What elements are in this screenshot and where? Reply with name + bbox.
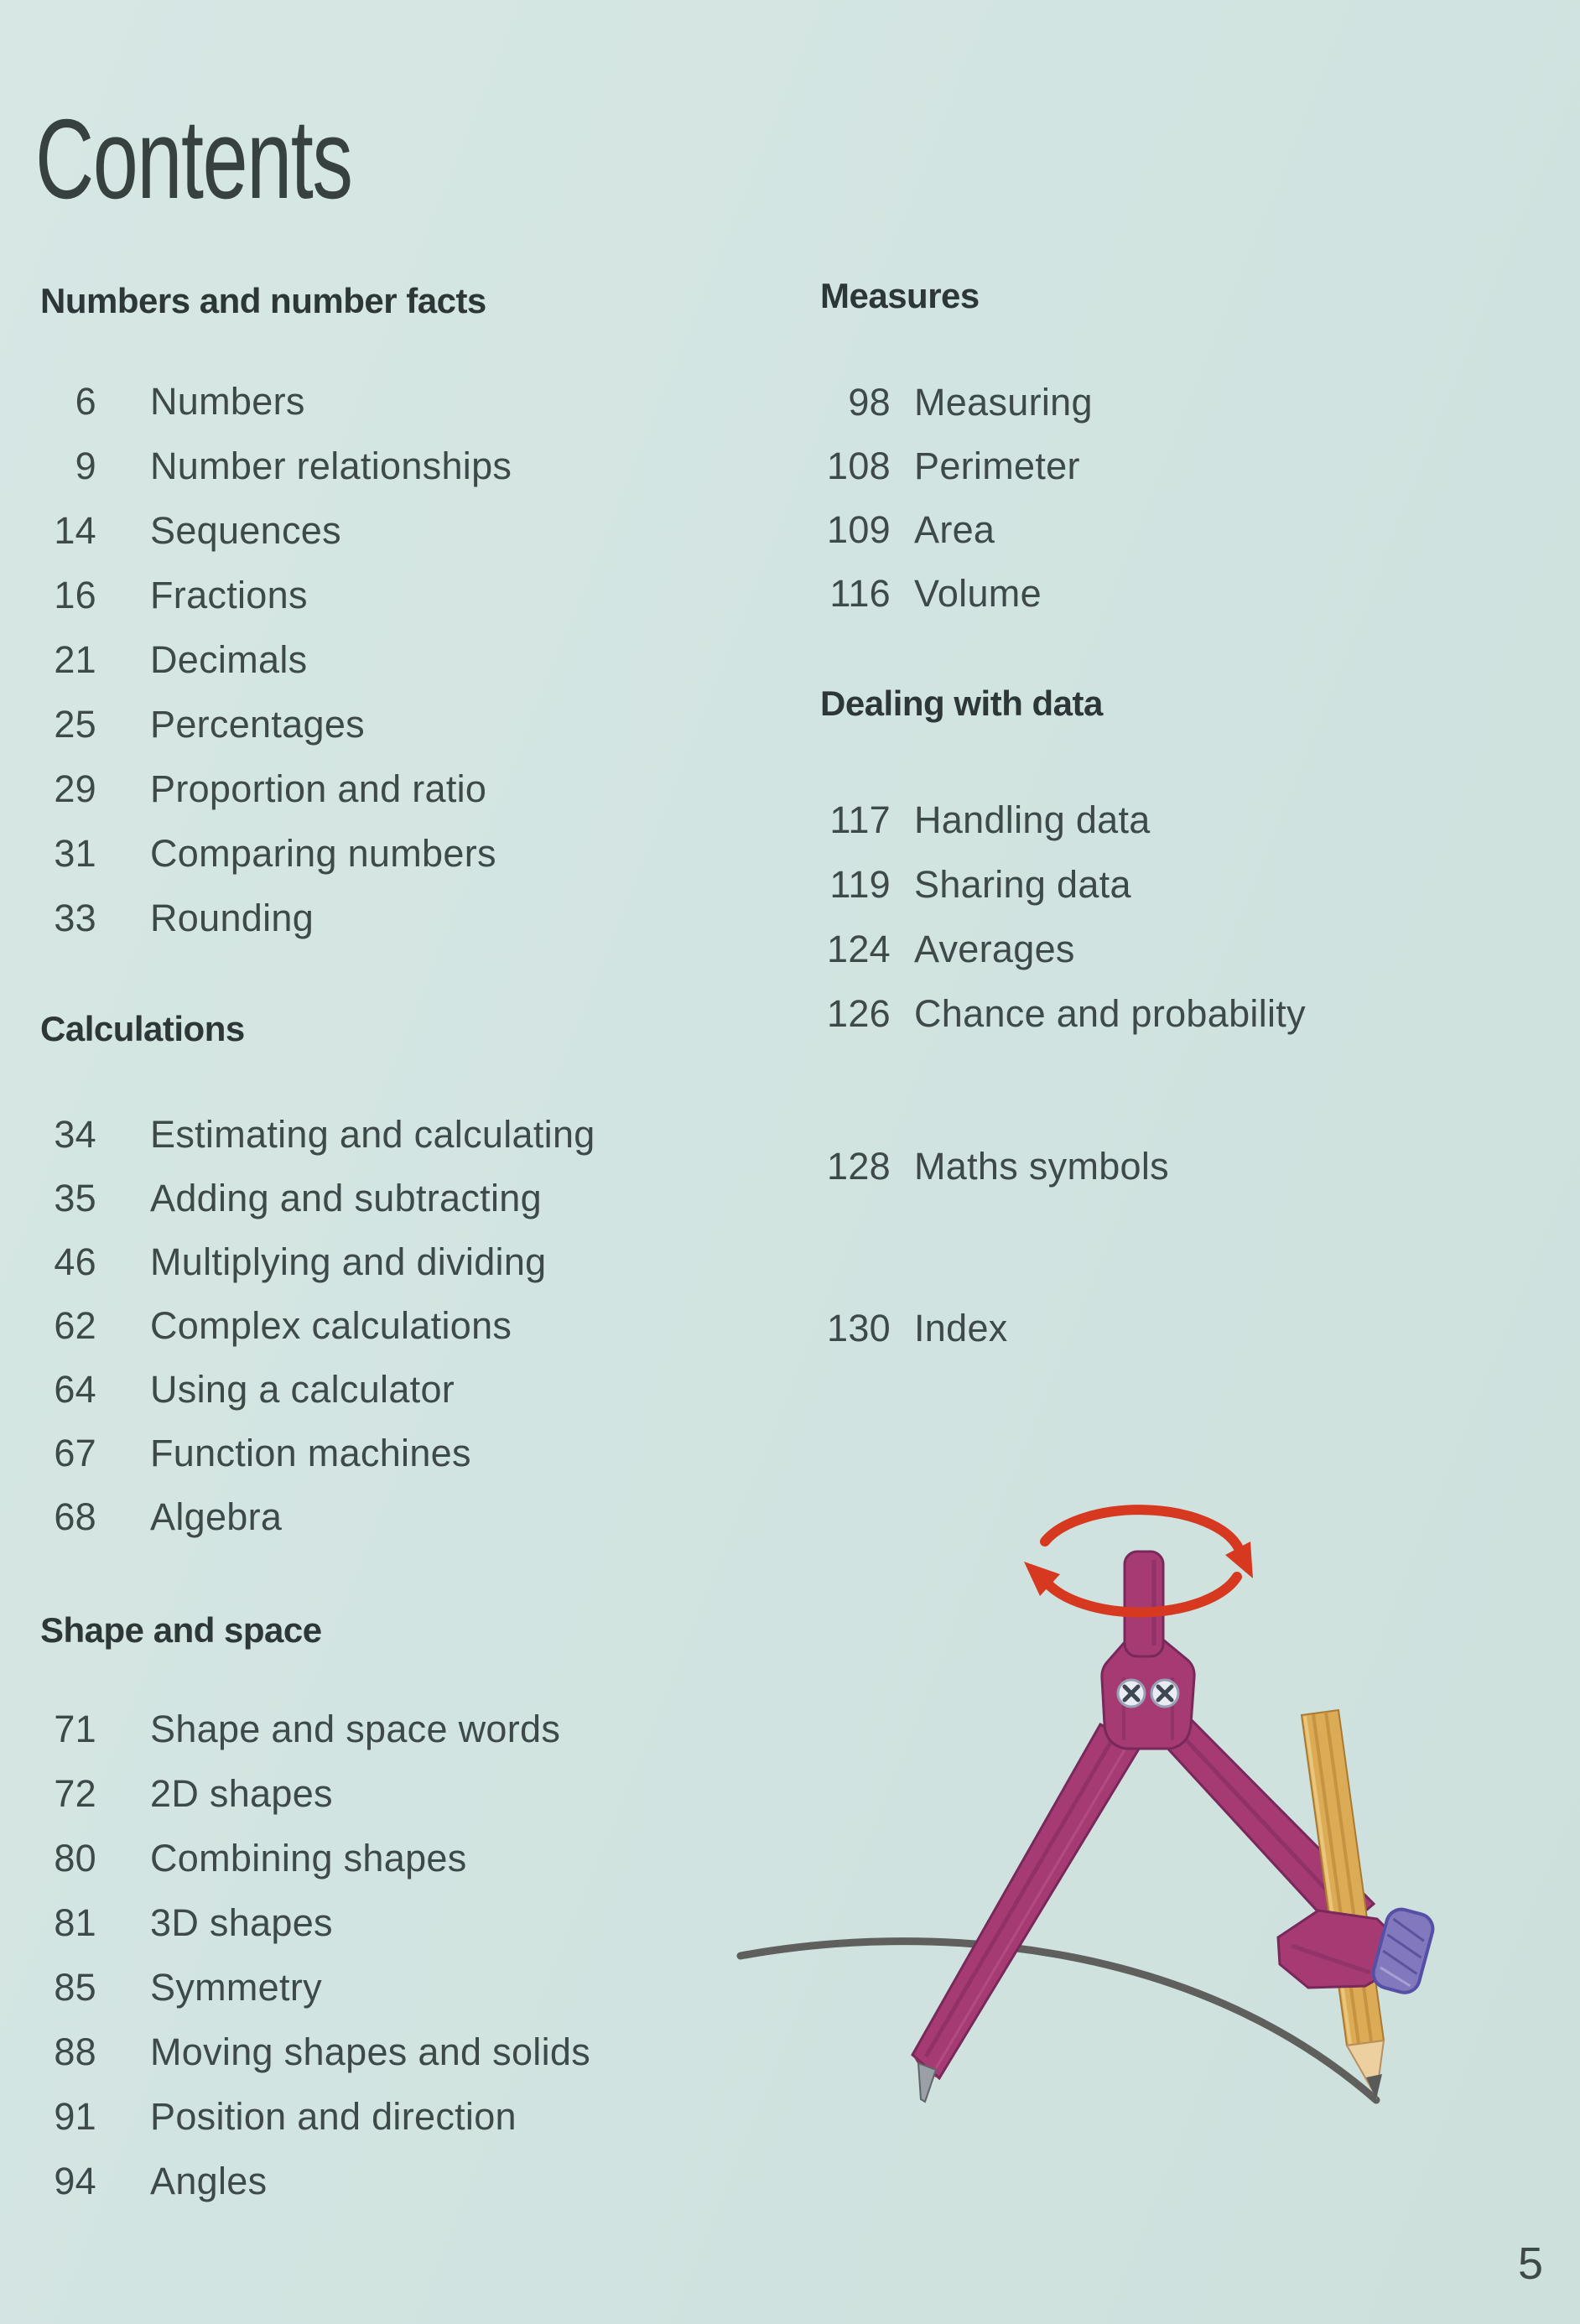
toc-entry-page-number: 124 — [797, 928, 891, 971]
toc-entry-page-number: 117 — [797, 798, 891, 842]
pencil — [1302, 1710, 1384, 2099]
toc-entry-page-number: 67 — [34, 1432, 96, 1475]
section-heading-dealing-with-data: Dealing with data — [820, 684, 1103, 724]
toc-entry: 126 Chance and probability — [797, 981, 1560, 1046]
toc-entry-page-number: 16 — [34, 574, 96, 617]
toc-entry-page-number: 62 — [34, 1304, 96, 1348]
toc-entry: 62 Complex calculations — [34, 1294, 772, 1358]
toc-entry: 130 Index — [797, 1296, 1560, 1360]
toc-entry: 124 Averages — [797, 917, 1560, 981]
toc-entry-page-number: 68 — [34, 1495, 96, 1539]
toc-section-rows: 6 Numbers 9 Number relationships 14 Sequ… — [34, 369, 772, 950]
toc-entry: 128 Maths symbols — [797, 1134, 1560, 1198]
page-title: Contents — [35, 94, 352, 224]
toc-entry-label: 2D shapes — [150, 1772, 333, 1816]
toc-entry: 29 Proportion and ratio — [34, 756, 772, 821]
toc-entry-page-number: 9 — [34, 445, 96, 488]
toc-entry: 109 Area — [797, 498, 1560, 562]
compass-knob — [1125, 1552, 1163, 1656]
toc-entry-label: Symmetry — [150, 1966, 322, 2009]
toc-entry: 67 Function machines — [34, 1422, 772, 1485]
toc-entry-label: Proportion and ratio — [150, 767, 486, 811]
toc-entry-label: Percentages — [150, 703, 365, 746]
toc-entry-page-number: 119 — [797, 863, 891, 907]
toc-entry-label: Multiplying and dividing — [150, 1240, 546, 1284]
toc-entry: 81 3D shapes — [34, 1890, 772, 1955]
toc-entry-label: Chance and probability — [914, 992, 1306, 1036]
toc-entry-page-number: 91 — [34, 2095, 96, 2139]
toc-entry: 119 Sharing data — [797, 852, 1560, 917]
toc-entry-label: Index — [914, 1307, 1008, 1350]
toc-entry-page-number: 31 — [34, 832, 96, 876]
toc-entry-page-number: 14 — [34, 509, 96, 553]
toc-entry: 116 Volume — [797, 562, 1560, 626]
toc-entry-page-number: 81 — [34, 1901, 96, 1945]
toc-section-rows: 98 Measuring 108 Perimeter 109 Area 116 … — [797, 371, 1560, 626]
toc-entry-label: Comparing numbers — [150, 832, 496, 876]
drawn-arc — [741, 1942, 1376, 2100]
toc-entry: 94 Angles — [34, 2149, 772, 2213]
toc-entry-label: Maths symbols — [914, 1145, 1169, 1188]
compass-pencil-leg — [1164, 1721, 1374, 1934]
toc-entry-page-number: 71 — [34, 1708, 96, 1751]
holder-thumbscrew — [1370, 1906, 1436, 1996]
toc-entry-label: Number relationships — [150, 445, 512, 488]
toc-entry: 21 Decimals — [34, 627, 772, 692]
toc-entry-label: Complex calculations — [150, 1304, 512, 1348]
compass-needle-point — [918, 2063, 936, 2102]
toc-standalone-rows: 128 Maths symbols 130 Index — [797, 1134, 1560, 1360]
toc-section-rows: 71 Shape and space words 72 2D shapes 80… — [34, 1697, 772, 2213]
toc-entry-label: Combining shapes — [150, 1837, 467, 1880]
toc-entry: 16 Fractions — [34, 563, 772, 627]
toc-entry-label: Sequences — [150, 509, 341, 553]
toc-entry-label: Area — [914, 508, 995, 552]
toc-entry-page-number: 21 — [34, 638, 96, 682]
toc-entry: 68 Algebra — [34, 1485, 772, 1549]
toc-entry-page-number: 25 — [34, 703, 96, 746]
toc-entry-label: 3D shapes — [150, 1901, 333, 1945]
book-contents-page: Contents Numbers and number facts 6 Numb… — [0, 0, 1580, 2324]
toc-entry-label: Shape and space words — [150, 1708, 560, 1751]
toc-entry-label: Fractions — [150, 574, 308, 617]
toc-entry-page-number: 128 — [797, 1145, 891, 1188]
toc-entry-page-number: 80 — [34, 1837, 96, 1880]
toc-entry: 14 Sequences — [34, 498, 772, 563]
toc-entry-page-number: 108 — [797, 445, 891, 488]
toc-entry: 25 Percentages — [34, 692, 772, 756]
toc-entry: 46 Multiplying and dividing — [34, 1230, 772, 1294]
compass-screws — [1118, 1680, 1178, 1707]
toc-entry-label: Numbers — [150, 380, 305, 424]
pencil-graphite-tip — [1366, 2074, 1382, 2099]
toc-entry-page-number: 85 — [34, 1966, 96, 2009]
toc-entry: 88 Moving shapes and solids — [34, 2020, 772, 2084]
section-heading-shape-and-space: Shape and space — [40, 1610, 322, 1651]
toc-entry: 72 2D shapes — [34, 1761, 772, 1826]
toc-entry: 31 Comparing numbers — [34, 821, 772, 886]
toc-entry-page-number: 64 — [34, 1368, 96, 1412]
toc-entry: 91 Position and direction — [34, 2084, 772, 2149]
toc-entry: 35 Adding and subtracting — [34, 1167, 772, 1230]
toc-entry-label: Handling data — [914, 798, 1151, 842]
toc-entry-label: Volume — [914, 572, 1042, 616]
toc-entry-label: Using a calculator — [150, 1368, 455, 1412]
toc-entry-page-number: 116 — [797, 572, 891, 616]
section-heading-numbers-and-number-facts: Numbers and number facts — [40, 281, 486, 321]
toc-entry: 80 Combining shapes — [34, 1826, 772, 1890]
page-number: 5 — [1476, 2238, 1543, 2290]
toc-entry-page-number: 94 — [34, 2160, 96, 2203]
toc-entry-page-number: 130 — [797, 1307, 891, 1350]
toc-entry: 108 Perimeter — [797, 434, 1560, 498]
toc-entry-page-number: 34 — [34, 1113, 96, 1157]
toc-entry-page-number: 109 — [797, 508, 891, 552]
toc-entry: 117 Handling data — [797, 788, 1560, 852]
compass-needle-leg — [912, 1724, 1141, 2102]
toc-entry-label: Measuring — [914, 381, 1093, 424]
section-heading-calculations: Calculations — [40, 1009, 245, 1049]
toc-entry-label: Decimals — [150, 638, 307, 682]
toc-section-rows: 117 Handling data 119 Sharing data 124 A… — [797, 788, 1560, 1046]
section-heading-measures: Measures — [820, 276, 980, 316]
pencil-wood-tip — [1347, 2041, 1384, 2097]
toc-entry: 85 Symmetry — [34, 1955, 772, 2020]
toc-entry: 6 Numbers — [34, 369, 772, 434]
toc-entry-label: Averages — [914, 928, 1075, 971]
toc-entry-label: Position and direction — [150, 2095, 517, 2139]
toc-entry-label: Sharing data — [914, 863, 1131, 907]
toc-entry: 34 Estimating and calculating — [34, 1103, 772, 1167]
toc-entry-label: Perimeter — [914, 445, 1080, 488]
rotation-arrow-icon — [1024, 1510, 1253, 1612]
toc-entry-label: Estimating and calculating — [150, 1113, 595, 1157]
toc-entry-page-number: 6 — [34, 380, 96, 424]
toc-entry-page-number: 98 — [797, 381, 891, 424]
toc-entry-label: Adding and subtracting — [150, 1177, 542, 1220]
toc-entry-page-number: 35 — [34, 1177, 96, 1220]
toc-section-rows: 34 Estimating and calculating 35 Adding … — [34, 1103, 772, 1549]
toc-entry-page-number: 29 — [34, 767, 96, 811]
toc-entry-page-number: 33 — [34, 897, 96, 940]
toc-entry: 71 Shape and space words — [34, 1697, 772, 1761]
pencil-holder-clamp — [1278, 1911, 1385, 1988]
toc-entry-label: Angles — [150, 2160, 267, 2203]
toc-entry-label: Moving shapes and solids — [150, 2030, 590, 2074]
toc-entry: 64 Using a calculator — [34, 1358, 772, 1422]
toc-entry-page-number: 126 — [797, 992, 891, 1036]
toc-entry-page-number: 88 — [34, 2030, 96, 2074]
compass-body — [1102, 1640, 1194, 1749]
toc-entry-label: Function machines — [150, 1432, 471, 1475]
toc-entry: 98 Measuring — [797, 371, 1560, 434]
toc-entry-label: Algebra — [150, 1495, 282, 1539]
toc-entry: 9 Number relationships — [34, 434, 772, 498]
toc-entry-label: Rounding — [150, 897, 314, 940]
toc-entry-page-number: 46 — [34, 1240, 96, 1284]
toc-entry-page-number: 72 — [34, 1772, 96, 1816]
toc-entry: 33 Rounding — [34, 886, 772, 950]
